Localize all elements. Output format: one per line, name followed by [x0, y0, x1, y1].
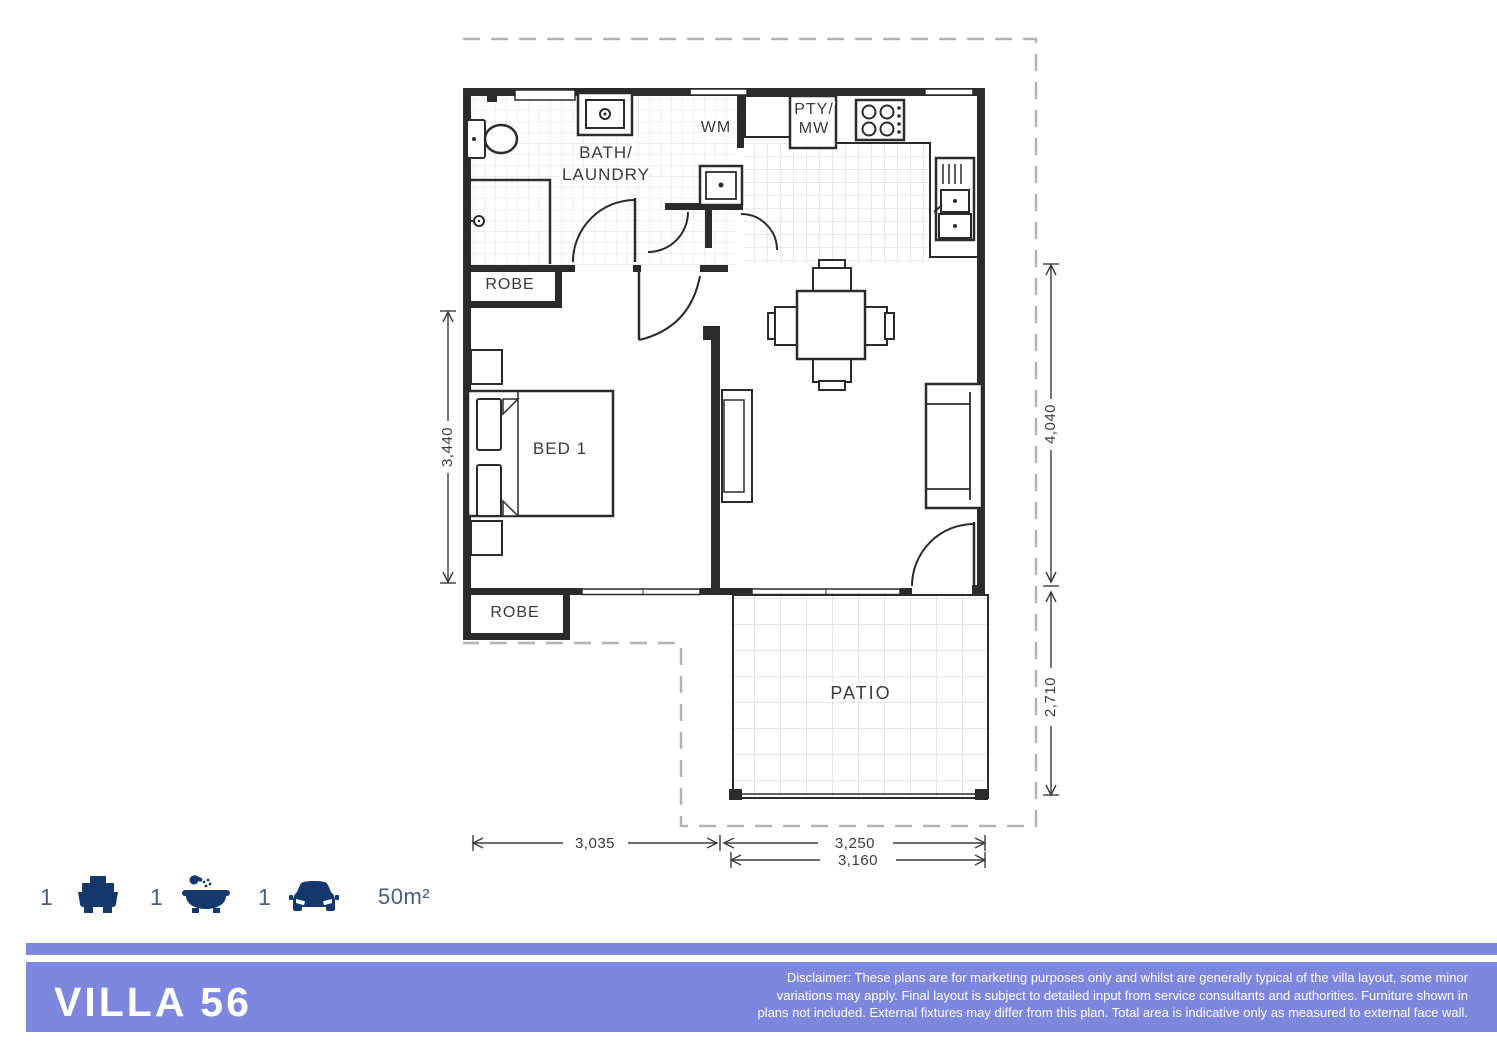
dim-bedroom-width: 3,035: [575, 835, 615, 852]
bed-icon: [72, 876, 124, 921]
label-robe-top: ROBE: [485, 276, 534, 293]
dining-chair: [813, 358, 851, 382]
nightstand: [471, 521, 502, 555]
nightstand: [471, 350, 502, 384]
disclaimer-line: variations may apply. Final layout is su…: [748, 987, 1468, 1005]
label-bath: BATH/: [579, 143, 633, 162]
bath-count: 1: [150, 884, 163, 911]
car-count: 1: [258, 884, 271, 911]
label-pty: PTY/: [794, 101, 834, 118]
bath-icon: [180, 874, 232, 921]
dim-living-width: 3,250: [835, 835, 875, 852]
label-wm: WM: [701, 119, 731, 136]
label-robe-bottom: ROBE: [490, 604, 539, 621]
bed-count: 1: [40, 884, 53, 911]
label-mw: MW: [799, 120, 829, 137]
patio-post: [729, 789, 742, 800]
car-icon: [288, 876, 340, 921]
footer-accent-bar: [26, 943, 1497, 955]
dining-chair: [813, 268, 851, 292]
toilet-bowl: [485, 125, 517, 153]
dim-patio-width: 3,160: [838, 852, 878, 869]
disclaimer-text: Disclaimer: These plans are for marketin…: [748, 969, 1468, 1022]
dim-patio-height: 2,710: [1042, 677, 1059, 717]
dining-table: [797, 291, 865, 359]
living-furniture: [722, 260, 982, 508]
fridge-space: [745, 96, 790, 137]
label-bed1: BED 1: [533, 439, 587, 458]
bedroom-door-swing: [639, 276, 700, 340]
cooktop: [856, 100, 904, 140]
villa-title: VILLA 56: [54, 979, 252, 1026]
disclaimer-line: Disclaimer: These plans are for marketin…: [748, 969, 1468, 987]
dining-chair: [819, 381, 845, 390]
dining-chair: [775, 307, 799, 345]
disclaimer-line: plans not included. External fixtures ma…: [748, 1004, 1468, 1022]
pillow: [477, 399, 501, 450]
dining-chair: [863, 307, 887, 345]
area-label: 50m²: [378, 884, 430, 910]
patio-door-swing: [912, 524, 974, 586]
towel-rail: [515, 90, 575, 100]
label-laundry: LAUNDRY: [562, 165, 650, 184]
dining-chair: [885, 313, 894, 339]
pillow: [477, 465, 501, 516]
patio-post: [975, 789, 988, 800]
label-patio: PATIO: [830, 683, 891, 703]
dim-living-height: 4,040: [1042, 404, 1059, 444]
floor-plan-page: 3,440 4,040 2,710 3,035 3,250 3,160 BATH…: [0, 0, 1497, 1058]
dim-bedroom-height: 3,440: [439, 427, 456, 467]
